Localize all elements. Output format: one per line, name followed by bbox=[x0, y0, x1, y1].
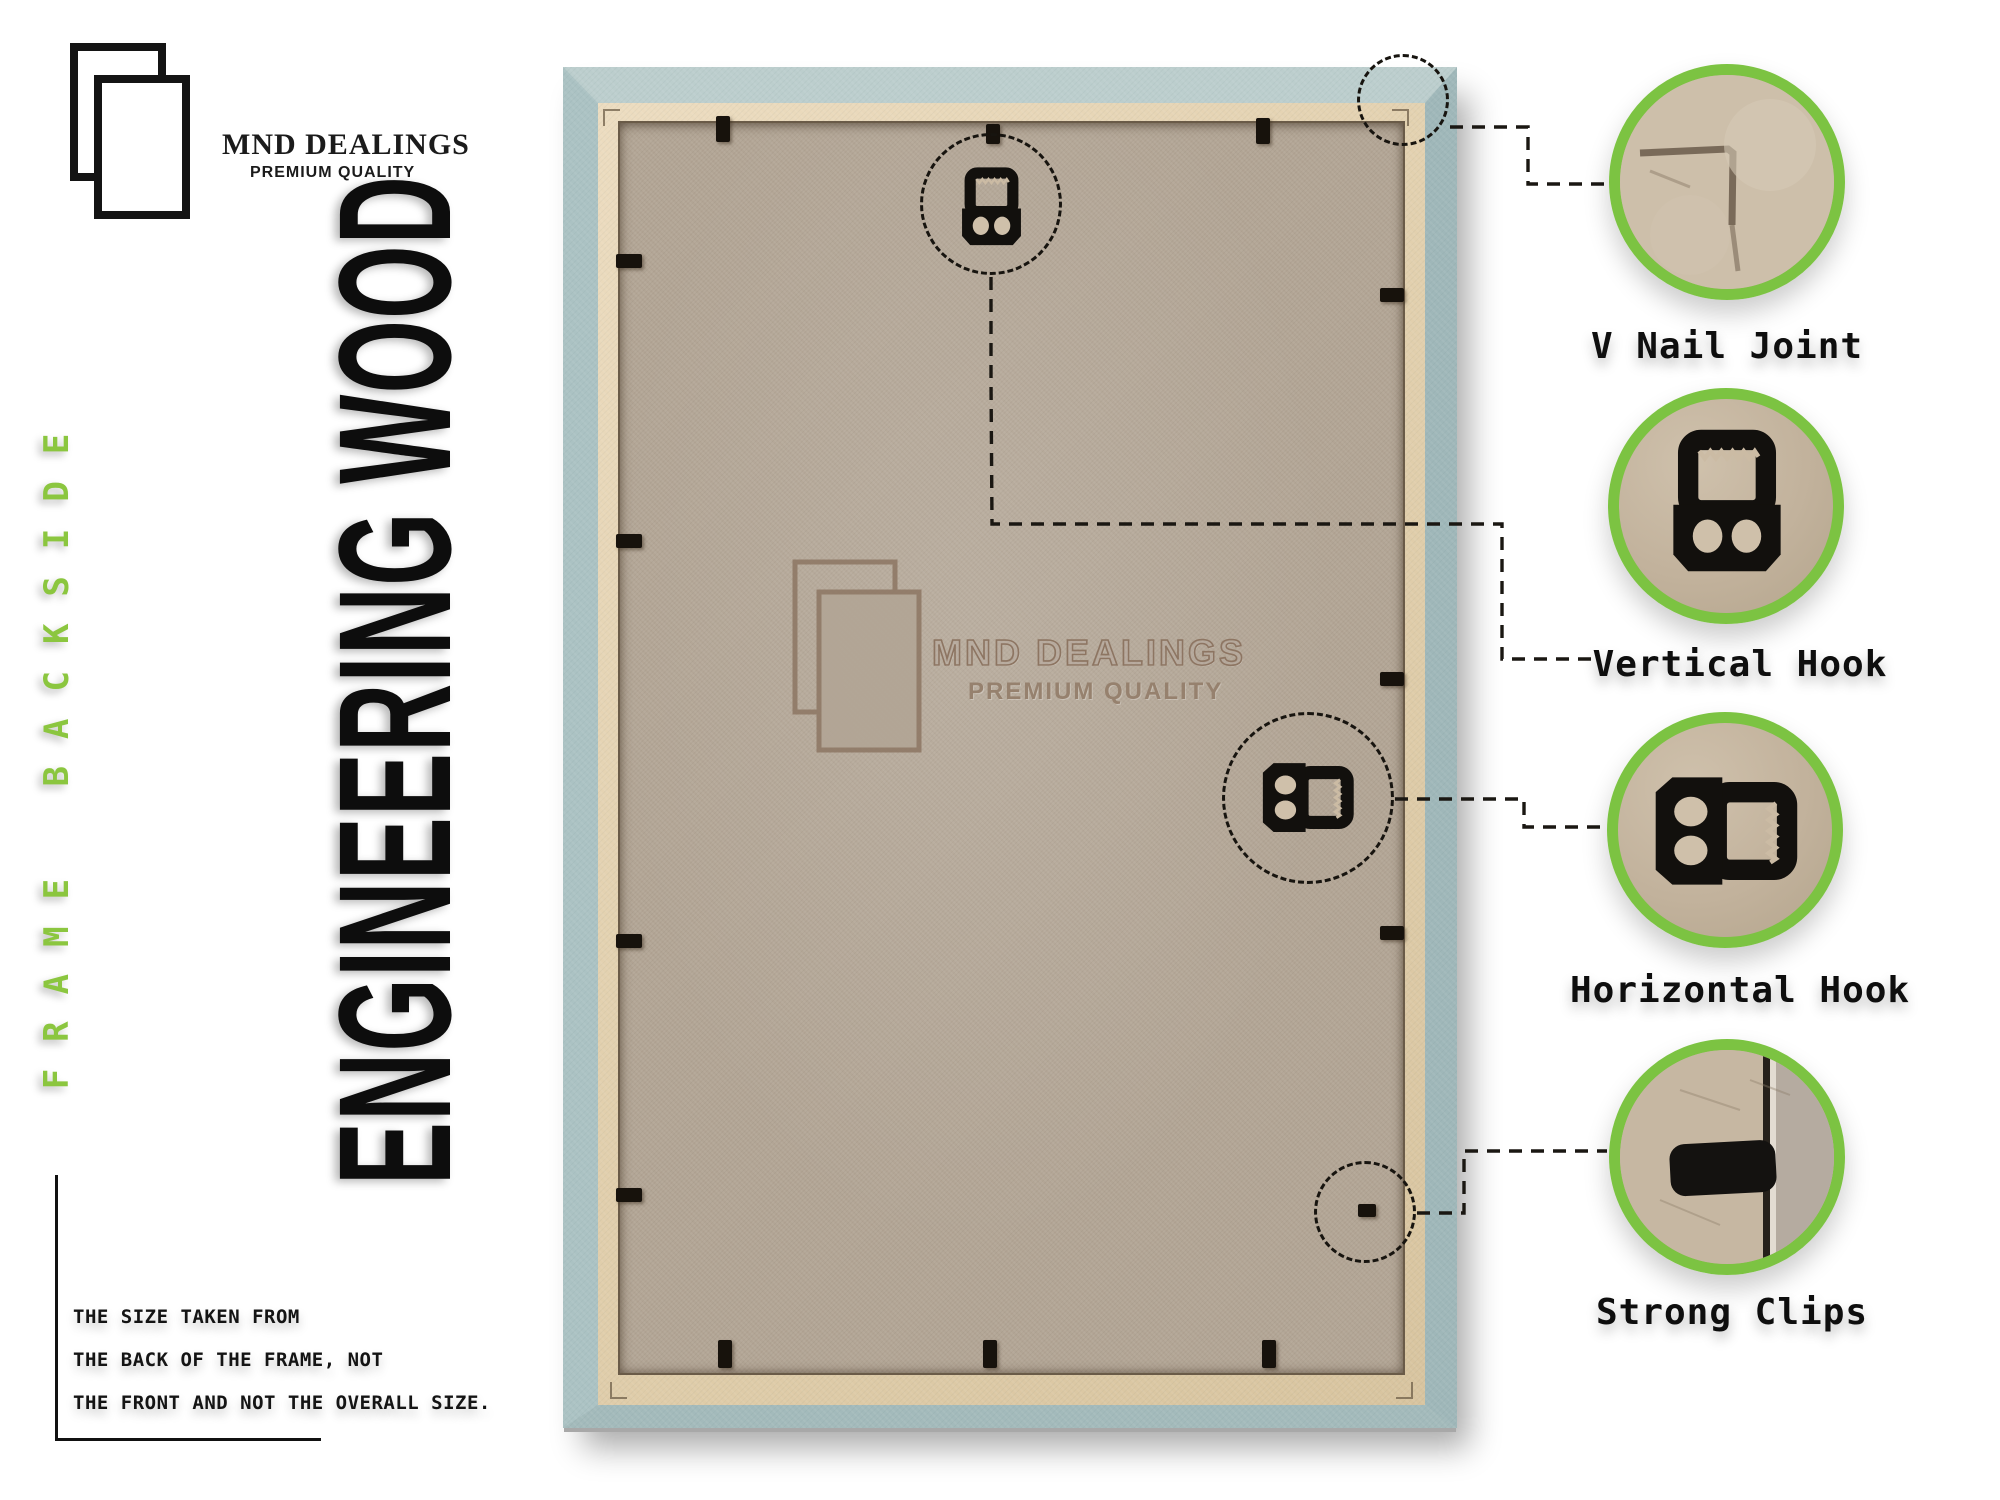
watermark-frames-icon bbox=[788, 556, 928, 761]
panel-clip bbox=[616, 1188, 642, 1202]
brand-logo-frames-icon bbox=[65, 40, 195, 225]
side-label-frame-backside: FRAME BACKSIDE bbox=[37, 407, 77, 1090]
panel-clip bbox=[1380, 926, 1404, 940]
vertical-hook-icon bbox=[1667, 427, 1787, 575]
material-title: ENGINEERING WOOD bbox=[303, 175, 487, 1185]
panel-clip bbox=[616, 254, 642, 268]
panel-clip bbox=[983, 1340, 997, 1368]
watermark-brand-name: MND DEALINGS bbox=[932, 632, 1232, 674]
callout-photo-horizontal-hook bbox=[1607, 712, 1843, 948]
miter-joint-photo bbox=[1620, 75, 1834, 289]
watermark-brand-tagline: PREMIUM QUALITY bbox=[968, 678, 1228, 706]
panel-clip bbox=[1256, 118, 1270, 144]
callout-photo-strong-clips bbox=[1609, 1039, 1845, 1275]
note-line-3: THE FRONT AND NOT THE OVERALL SIZE. bbox=[73, 1392, 491, 1414]
note-bracket-horizontal-line bbox=[55, 1438, 321, 1441]
panel-clip bbox=[1380, 288, 1404, 302]
callout-label-strong-clips: Strong Clips bbox=[1562, 1292, 1902, 1333]
note-line-2: THE BACK OF THE FRAME, NOT bbox=[73, 1349, 383, 1371]
callout-photo-v-nail-joint bbox=[1609, 64, 1845, 300]
product-infographic: { "brand": { "name": "MND DEALINGS", "ta… bbox=[0, 0, 2000, 1500]
panel-clip bbox=[718, 1340, 732, 1368]
horizontal-hook-icon bbox=[1652, 771, 1800, 891]
panel-clip bbox=[616, 534, 642, 548]
panel-clip bbox=[616, 934, 642, 948]
callout-label-vertical-hook: Vertical Hook bbox=[1570, 644, 1910, 685]
panel-clip bbox=[1380, 672, 1404, 686]
note-line-1: THE SIZE TAKEN FROM bbox=[73, 1306, 300, 1328]
connector-v-nail-joint bbox=[1450, 127, 1608, 184]
brand-name: MND DEALINGS bbox=[222, 128, 502, 162]
note-bracket-vertical-line bbox=[55, 1175, 58, 1441]
dashed-circle-strong-clip bbox=[1314, 1161, 1416, 1263]
miter-mark-bottom-right bbox=[1396, 1382, 1413, 1399]
back-panel-clip-photo bbox=[1620, 1050, 1834, 1264]
miter-mark-top-left bbox=[603, 109, 620, 126]
miter-mark-bottom-left bbox=[610, 1382, 627, 1399]
callout-label-v-nail-joint: V Nail Joint bbox=[1557, 326, 1897, 367]
dashed-circle-vertical-hook bbox=[920, 133, 1062, 275]
dashed-circle-horizontal-hook bbox=[1222, 712, 1394, 884]
dashed-circle-v-nail-joint bbox=[1357, 54, 1449, 146]
panel-clip bbox=[1262, 1340, 1276, 1368]
callout-photo-vertical-hook bbox=[1608, 388, 1844, 624]
panel-clip bbox=[716, 116, 730, 142]
callout-label-horizontal-hook: Horizontal Hook bbox=[1570, 970, 1910, 1011]
